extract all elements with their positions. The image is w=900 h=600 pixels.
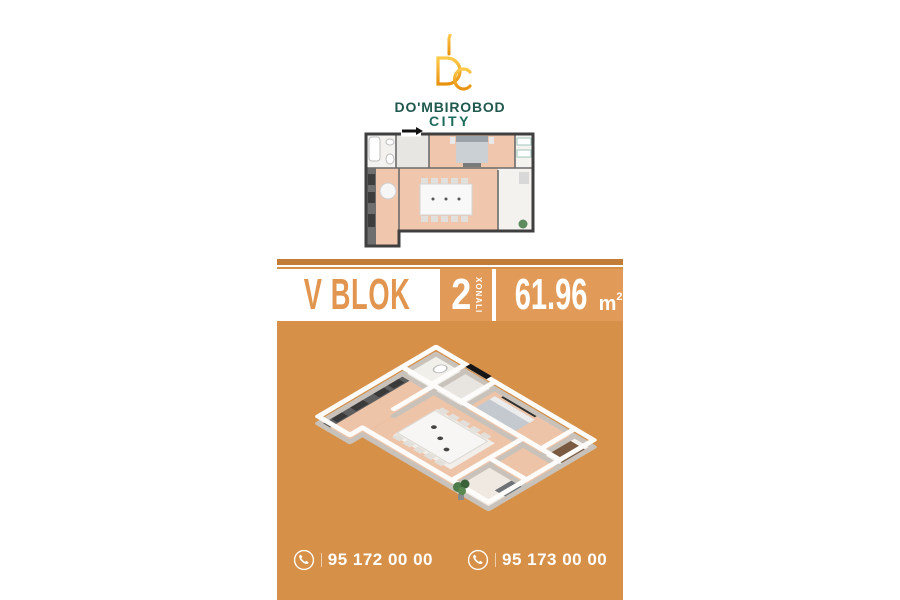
contacts-row: 95 172 00 00 95 173 00 00 xyxy=(277,547,623,573)
contact-divider xyxy=(495,553,496,567)
2d-top-down-floorplan xyxy=(363,127,537,251)
rooms-word: XONALI xyxy=(474,275,483,315)
sink xyxy=(386,139,394,145)
phone-icon xyxy=(467,549,489,571)
offer-header: V BLOK 2 XONALI 61.96 m 2 xyxy=(277,269,623,321)
dresser xyxy=(463,163,481,167)
hallway-floor xyxy=(396,135,429,168)
plant xyxy=(519,220,528,229)
card-top-stripe xyxy=(277,259,623,267)
round-table xyxy=(380,183,396,199)
area-unit: m xyxy=(599,294,617,314)
block-badge: V BLOK xyxy=(277,269,438,321)
offer-card: V BLOK 2 XONALI 61.96 m 2 xyxy=(277,259,623,600)
area-badge: 61.96 m 2 xyxy=(496,269,623,321)
phone-contact-2: 95 173 00 00 xyxy=(467,549,607,571)
phone-contact-1: 95 172 00 00 xyxy=(293,549,433,571)
rooms-count: 2 xyxy=(451,269,471,321)
phone-number: 95 173 00 00 xyxy=(502,550,607,570)
contact-divider xyxy=(321,553,322,567)
area-exponent: 2 xyxy=(616,291,622,303)
bathtub xyxy=(369,137,380,161)
rooms-badge: 2 XONALI xyxy=(440,269,492,321)
dc-monogram-icon xyxy=(420,34,480,98)
3d-isometric-floorplan xyxy=(288,327,612,541)
toilet xyxy=(386,154,394,164)
area-value: 61.96 xyxy=(515,276,588,314)
phone-number: 95 172 00 00 xyxy=(328,550,433,570)
dining-table xyxy=(420,178,472,222)
flyer: DO'MBIROBOD CITY xyxy=(0,0,900,600)
phone-icon xyxy=(293,549,315,571)
block-label: V BLOK xyxy=(304,269,411,321)
